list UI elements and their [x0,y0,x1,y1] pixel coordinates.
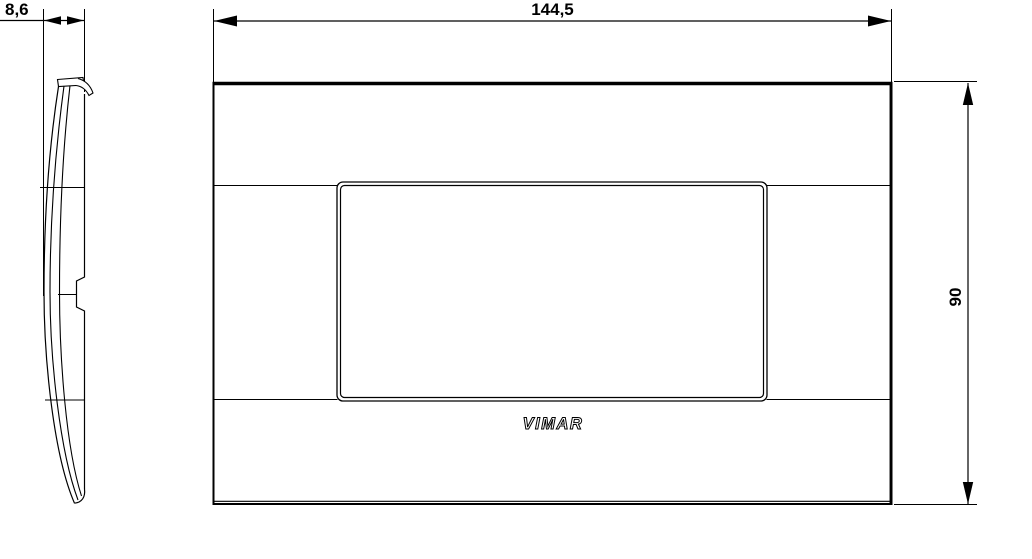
arrow-left-icon [214,16,237,27]
profile-back-edge [77,94,85,489]
arrow-down-icon [963,482,973,504]
profile-front-contour-3 [60,86,82,497]
technical-drawing-cover-plate: VIMAR [0,0,1032,559]
dimension-depth-label: 8,6 [5,0,29,20]
brand-logo: VIMAR [523,415,584,433]
drawing-linework: VIMAR [0,0,1032,559]
plate-outline [214,83,892,504]
dimension-width-label: 144,5 [500,0,605,20]
arrow-up-icon [963,83,973,105]
arrow-right-icon [67,16,84,25]
arrow-left-icon [44,16,61,25]
profile-top-hook [76,79,93,96]
front-view: VIMAR [213,83,893,504]
arrow-right-icon [868,16,891,27]
dimension-height-label: 90 [945,275,967,319]
side-view [40,9,93,503]
